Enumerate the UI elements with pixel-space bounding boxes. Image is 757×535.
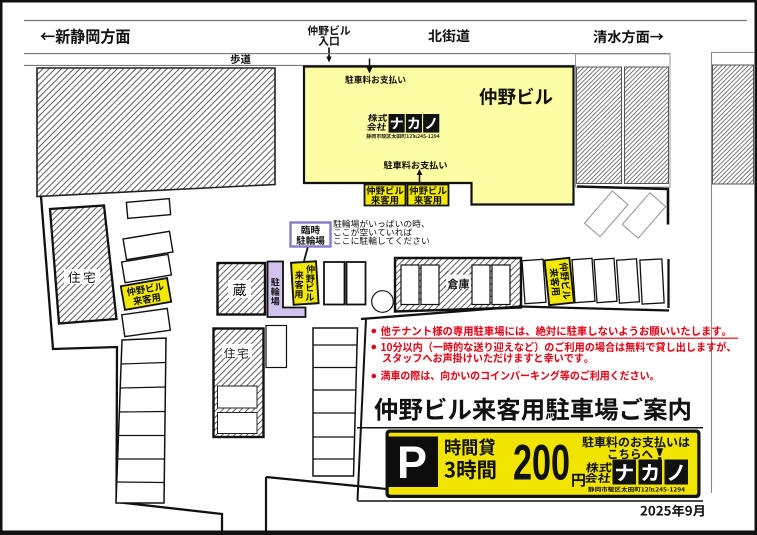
svg-text:清水方面→: 清水方面→ — [593, 27, 664, 47]
svg-text:他テナント様の専用駐車場には、絶対に駐車しないようお願いいた: 他テナント様の専用駐車場には、絶対に駐車しないようお願いいたします。 — [381, 323, 733, 339]
svg-text:カ: カ — [640, 457, 660, 486]
svg-text:2025年9月: 2025年9月 — [640, 501, 706, 520]
svg-text:北街道: 北街道 — [428, 26, 470, 46]
svg-text:来客用: 来客用 — [371, 192, 399, 206]
svg-text:入口: 入口 — [318, 33, 340, 49]
svg-text:ナ: ナ — [614, 457, 634, 486]
svg-text:駐車料お支払い: 駐車料お支払い — [345, 73, 406, 86]
svg-text:住宅: 住宅 — [68, 267, 98, 286]
svg-text:200: 200 — [513, 435, 570, 491]
svg-text:P: P — [397, 437, 427, 488]
svg-text:仲野ビル来客用駐車場ご案内: 仲野ビル来客用駐車場ご案内 — [374, 392, 692, 427]
svg-text:蔵: 蔵 — [233, 280, 247, 300]
svg-text:来客用: 来客用 — [414, 192, 442, 206]
svg-text:満車の際は、向かいのコインパーキング等のご利用ください。: 満車の際は、向かいのコインパーキング等のご利用ください。 — [381, 368, 660, 384]
svg-text:ここに駐輪してください: ここに駐輪してください — [333, 234, 430, 247]
svg-text:会社: 会社 — [366, 121, 387, 133]
svg-text:ル: ル — [305, 289, 314, 303]
svg-text:用: 用 — [294, 287, 303, 301]
svg-text:駐車料お支払い: 駐車料お支払い — [384, 159, 448, 172]
svg-text:ノ: ノ — [666, 457, 686, 486]
svg-text:静岡市駿区太田町12℡245-1294: 静岡市駿区太田町12℡245-1294 — [588, 484, 686, 493]
svg-text:倉庫: 倉庫 — [448, 276, 470, 292]
svg-text:住宅: 住宅 — [224, 346, 250, 362]
svg-text:←新静岡方面: ←新静岡方面 — [40, 24, 131, 48]
svg-text:ノ: ノ — [424, 114, 438, 134]
svg-text:3時間: 3時間 — [444, 455, 497, 485]
svg-text:駐輪場: 駐輪場 — [296, 233, 325, 247]
svg-text:来客用: 来客用 — [547, 267, 564, 296]
svg-text:静岡市駿区太田町12℡245-1294: 静岡市駿区太田町12℡245-1294 — [366, 133, 439, 140]
svg-text:仲野ビル: 仲野ビル — [479, 84, 553, 110]
svg-text:場: 場 — [271, 295, 280, 308]
svg-text:スタッフへお声掛けいただけますと幸いです。: スタッフへお声掛けいただけますと幸いです。 — [382, 350, 594, 366]
svg-text:カ: カ — [407, 114, 421, 134]
svg-text:ナ: ナ — [390, 114, 404, 134]
